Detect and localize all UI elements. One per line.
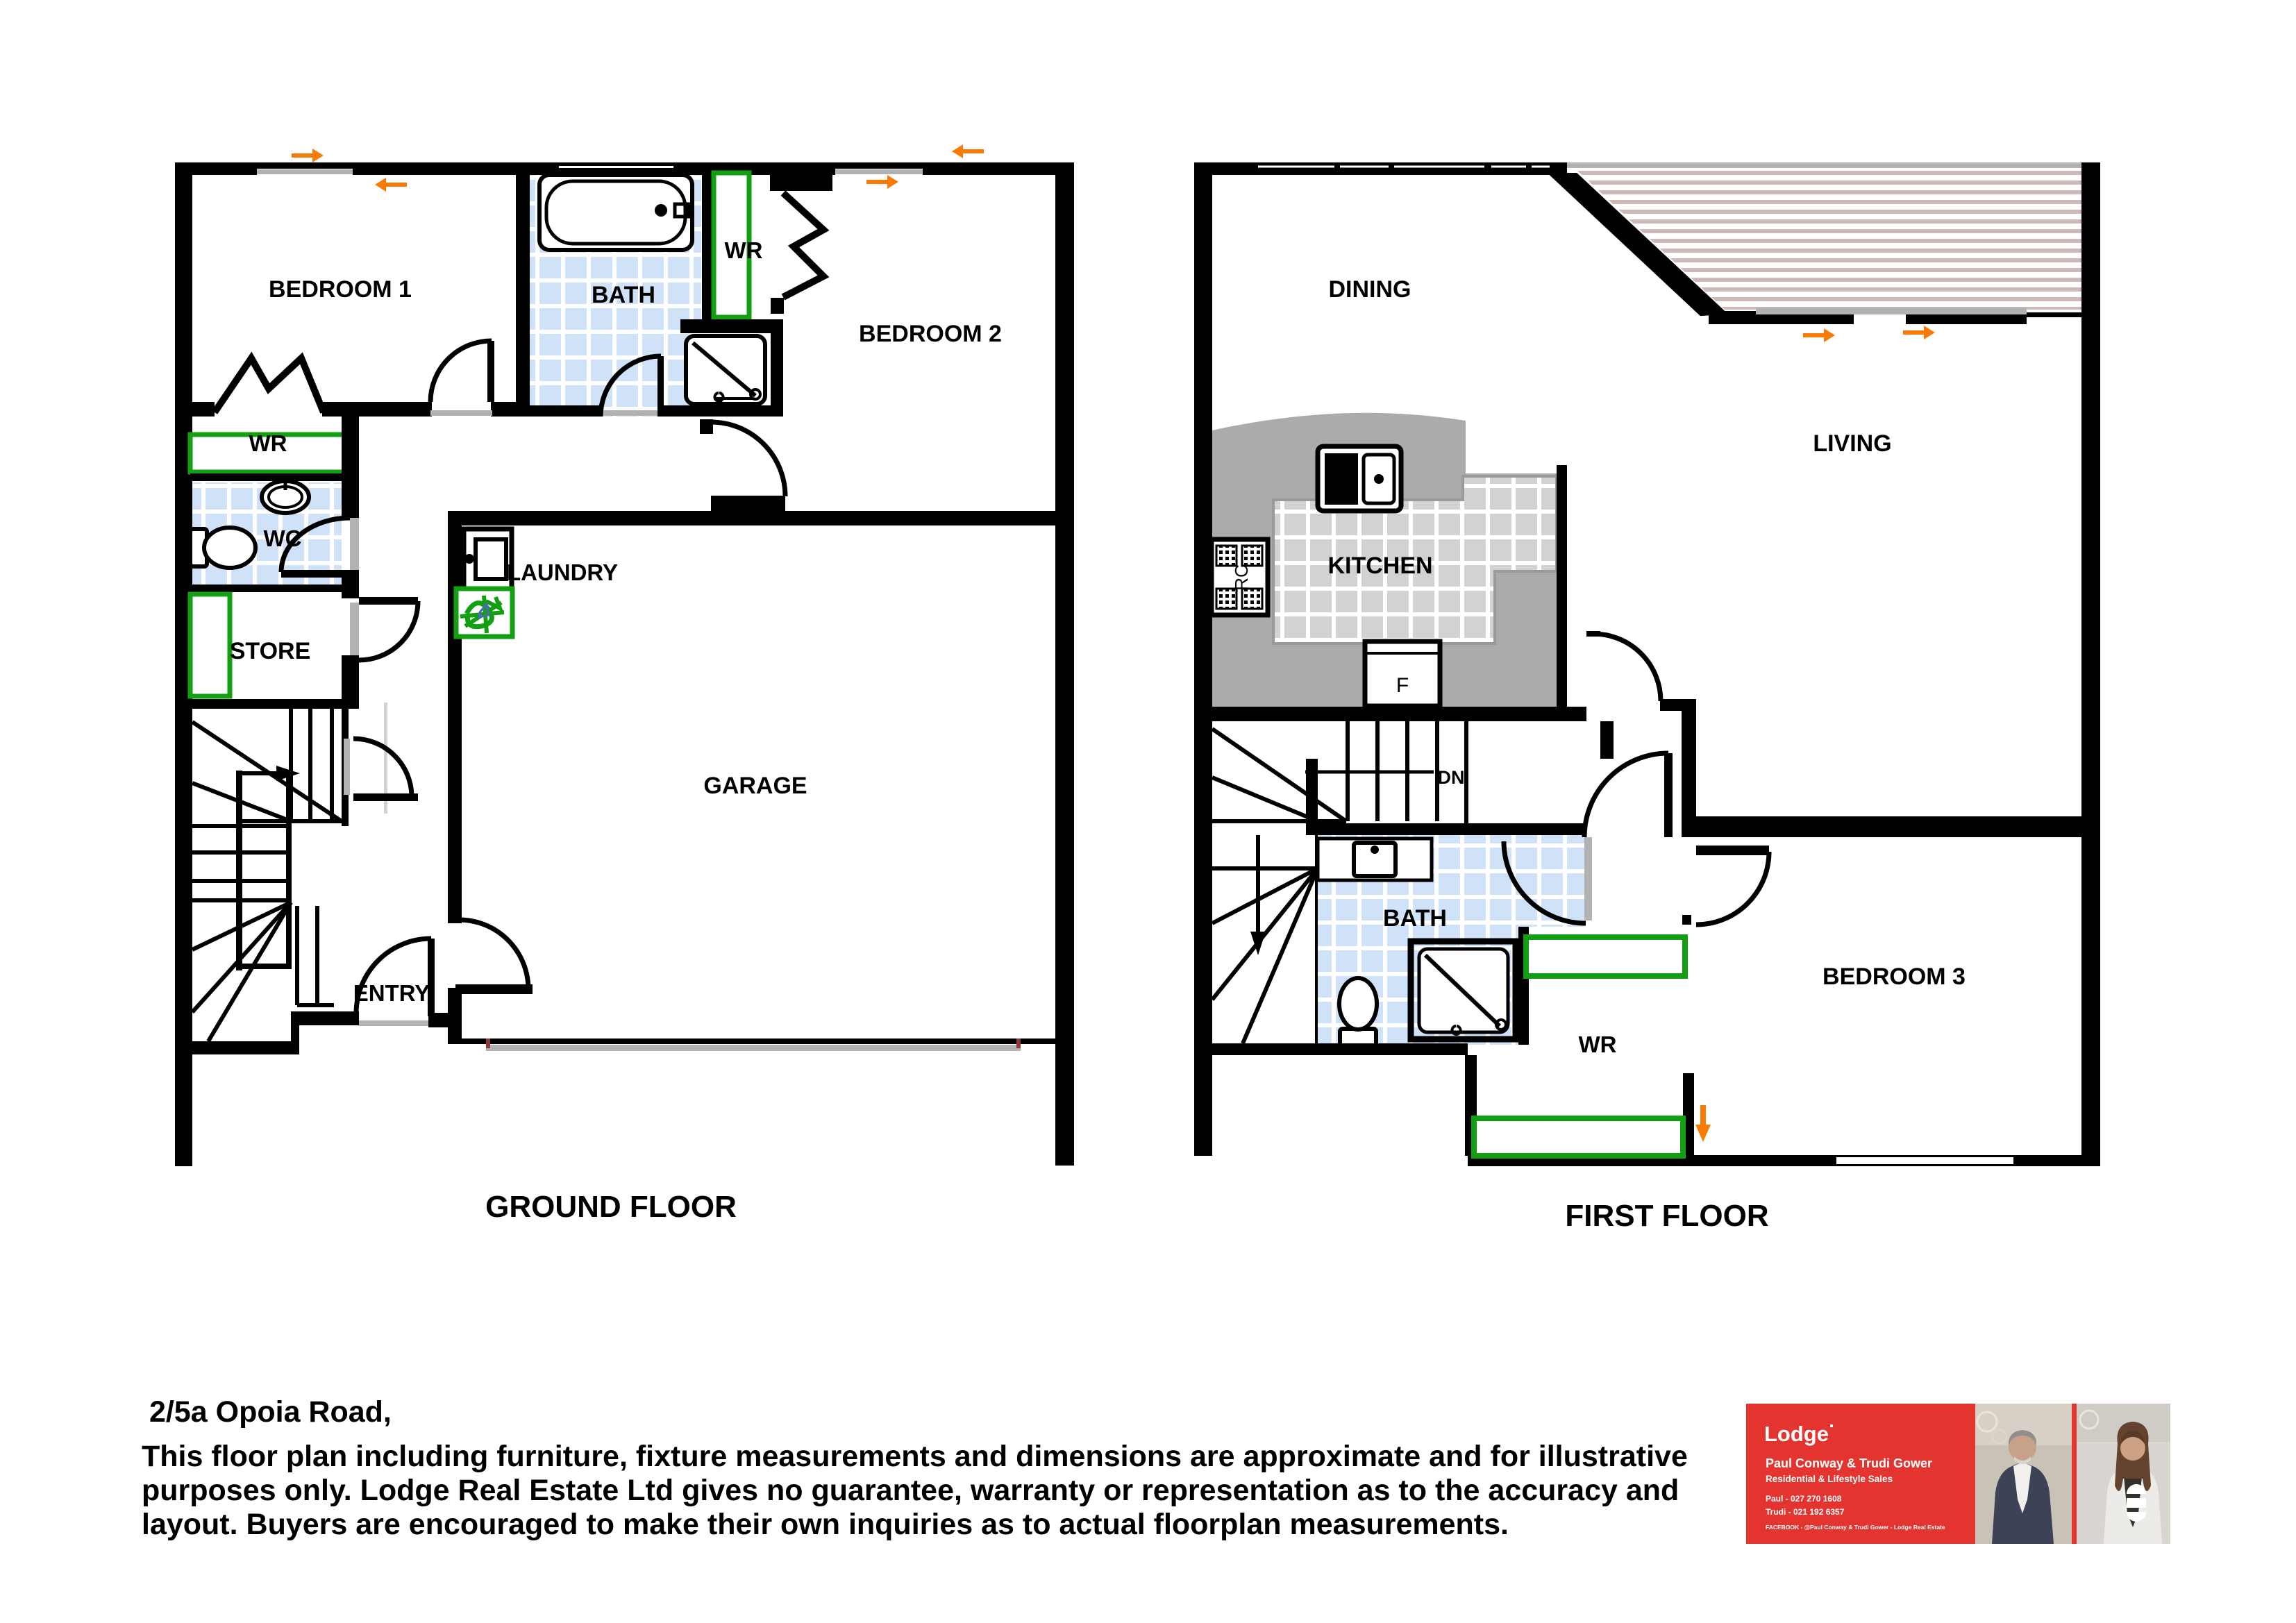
svg-text:Residential & Lifestyle Sales: Residential & Lifestyle Sales	[1766, 1474, 1893, 1484]
svg-text:GARAGE: GARAGE	[703, 773, 807, 799]
svg-text:2/5a Opoia Road,: 2/5a Opoia Road,	[149, 1395, 392, 1429]
svg-text:FIRST FLOOR: FIRST FLOOR	[1565, 1199, 1768, 1233]
svg-text:BEDROOM 1: BEDROOM 1	[269, 276, 412, 303]
svg-text:LIVING: LIVING	[1813, 430, 1891, 457]
svg-text:BATH: BATH	[1383, 905, 1447, 932]
svg-text:layout. Buyers are encouraged: layout. Buyers are encouraged to make th…	[142, 1508, 1509, 1541]
svg-text:FACEBOOK - @Paul Conway & Trud: FACEBOOK - @Paul Conway & Trudi Gower - …	[1766, 1524, 1945, 1531]
svg-text:WR: WR	[1579, 1032, 1617, 1057]
svg-text:RC: RC	[1231, 564, 1252, 591]
svg-text:purposes only. Lodge Real Esta: purposes only. Lodge Real Estate Ltd giv…	[142, 1474, 1679, 1507]
svg-text:DN: DN	[1438, 767, 1465, 788]
svg-text:LAUNDRY: LAUNDRY	[507, 560, 618, 585]
svg-text:Lodge: Lodge	[1764, 1422, 1829, 1446]
svg-text:DINING: DINING	[1329, 276, 1411, 303]
svg-text:This floor plan including furn: This floor plan including furniture, fix…	[142, 1440, 1688, 1473]
svg-text:BATH: BATH	[592, 282, 655, 308]
svg-text:Paul - 027 270 1608: Paul - 027 270 1608	[1766, 1494, 1842, 1504]
svg-text:BEDROOM 3: BEDROOM 3	[1822, 964, 1966, 990]
svg-text:GROUND FLOOR: GROUND FLOOR	[485, 1190, 737, 1224]
svg-text:STORE: STORE	[230, 638, 311, 664]
svg-text:ENTRY: ENTRY	[353, 980, 430, 1006]
svg-text:Trudi - 021 192 6357: Trudi - 021 192 6357	[1766, 1507, 1845, 1517]
svg-text:F: F	[1396, 674, 1409, 697]
svg-text:WR: WR	[249, 430, 287, 456]
svg-text:BEDROOM 2: BEDROOM 2	[859, 321, 1002, 347]
svg-text:KITCHEN: KITCHEN	[1327, 553, 1432, 579]
svg-text:Paul Conway & Trudi Gower: Paul Conway & Trudi Gower	[1766, 1456, 1932, 1470]
svg-text:WR: WR	[725, 237, 763, 263]
